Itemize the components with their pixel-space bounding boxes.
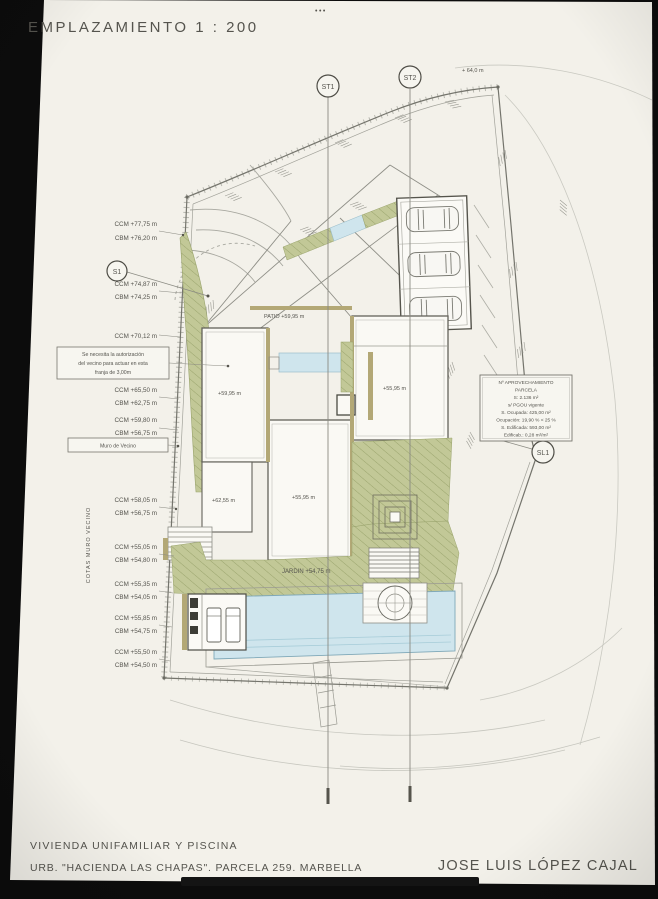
photo-vignette (0, 0, 658, 899)
plan-drawing: ST1 ST2 S1 SL1 + 64,0 m CCM +77,75 m CBM… (0, 0, 658, 899)
site-plan-sheet: ST1 ST2 S1 SL1 + 64,0 m CCM +77,75 m CBM… (0, 0, 658, 899)
